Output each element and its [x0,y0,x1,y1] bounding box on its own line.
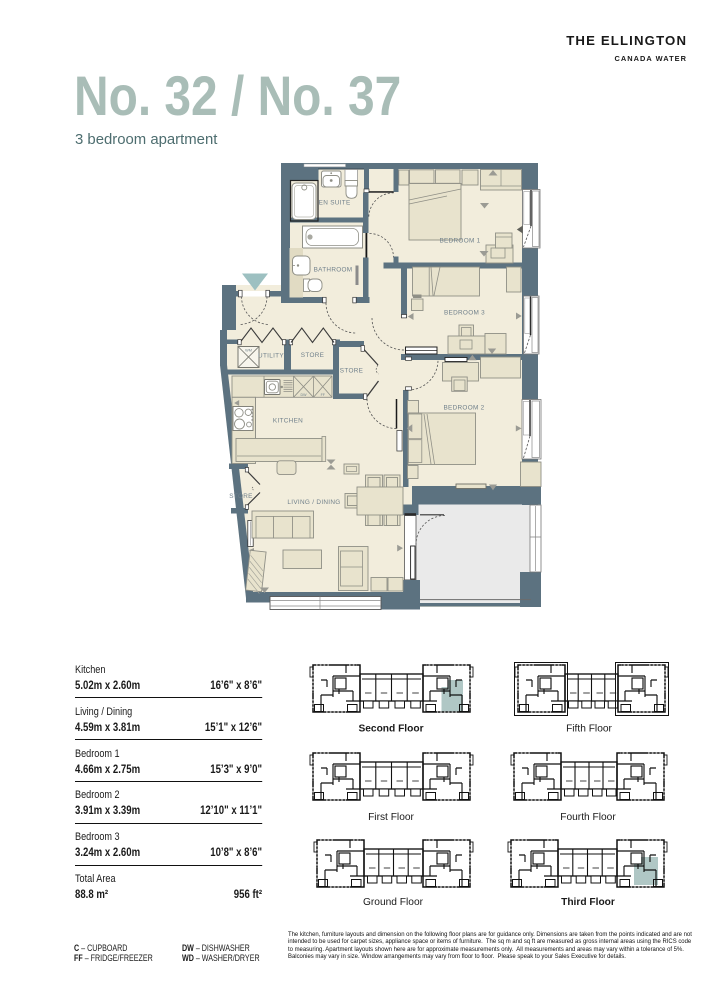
svg-text:BEDROOM 3: BEDROOM 3 [444,310,485,317]
svg-text:Ground Floor: Ground Floor [363,897,424,908]
svg-text:STORE: STORE [340,368,363,375]
svg-text:Third Floor: Third Floor [561,897,615,908]
svg-text:BATHROOM: BATHROOM [314,267,353,274]
svg-text:WM: WM [245,349,252,353]
svg-text:DW: DW [301,393,308,397]
svg-text:UTILITY: UTILITY [258,353,284,360]
svg-text:Fifth Floor: Fifth Floor [566,724,612,735]
svg-text:Fourth Floor: Fourth Floor [560,812,616,823]
svg-text:EN SUITE: EN SUITE [319,200,351,207]
svg-text:STORE: STORE [229,493,252,500]
svg-text:KITCHEN: KITCHEN [273,418,303,425]
svg-text:STORE: STORE [301,352,324,359]
svg-text:Second Floor: Second Floor [358,724,423,735]
svg-text:BEDROOM 1: BEDROOM 1 [439,238,480,245]
svg-text:First Floor: First Floor [368,812,414,823]
svg-text:LIVING / DINING: LIVING / DINING [287,499,340,506]
svg-text:BEDROOM 2: BEDROOM 2 [443,405,484,412]
